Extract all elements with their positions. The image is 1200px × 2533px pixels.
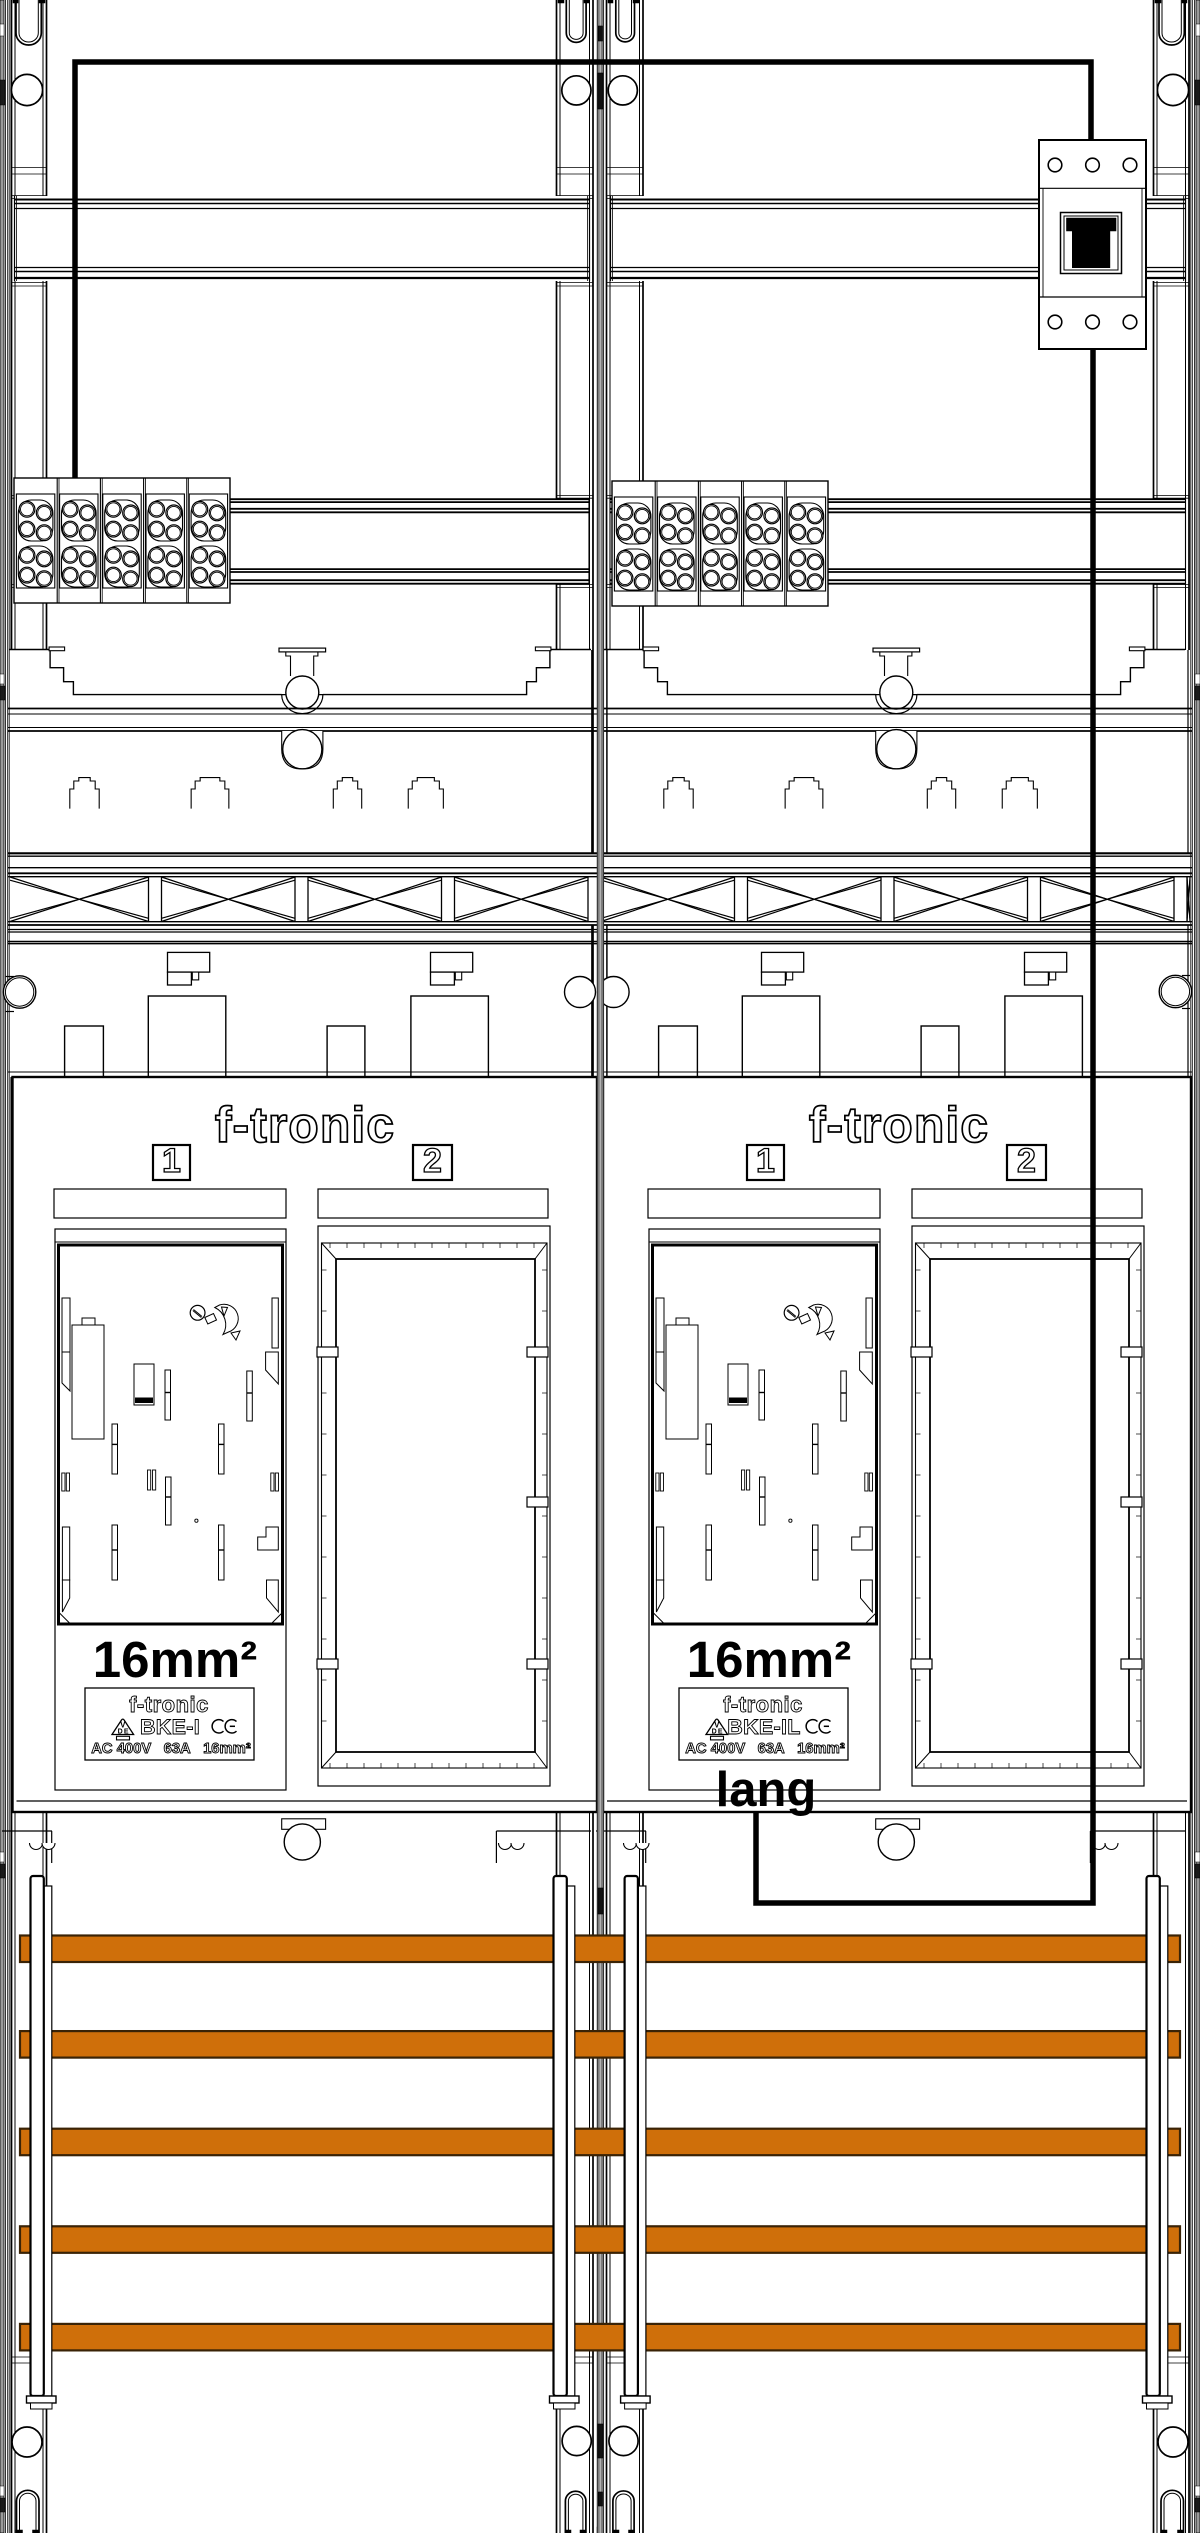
svg-text:E: E [718, 1729, 723, 1736]
svg-text:16mm²: 16mm² [687, 1631, 851, 1688]
svg-text:2: 2 [1017, 1142, 1036, 1180]
svg-text:f-tronic: f-tronic [129, 1692, 209, 1717]
svg-text:1: 1 [162, 1142, 181, 1180]
svg-text:D: D [118, 1729, 123, 1736]
svg-text:BKE-I: BKE-I [140, 1715, 200, 1739]
svg-text:1: 1 [756, 1142, 775, 1180]
svg-text:2: 2 [423, 1142, 442, 1180]
svg-text:16mm²: 16mm² [93, 1631, 257, 1688]
svg-text:E: E [124, 1729, 129, 1736]
svg-text:D: D [712, 1729, 717, 1736]
svg-text:f-tronic: f-tronic [809, 1097, 989, 1153]
svg-text:AC 400V 63A 16mm²: AC 400V 63A 16mm² [91, 1741, 251, 1757]
svg-text:AC 400V 63A 16mm²: AC 400V 63A 16mm² [685, 1741, 845, 1757]
svg-text:BKE-IL: BKE-IL [727, 1715, 800, 1739]
svg-text:f-tronic: f-tronic [215, 1097, 395, 1153]
svg-text:f-tronic: f-tronic [723, 1692, 803, 1717]
svg-text:lang: lang [716, 1763, 817, 1817]
